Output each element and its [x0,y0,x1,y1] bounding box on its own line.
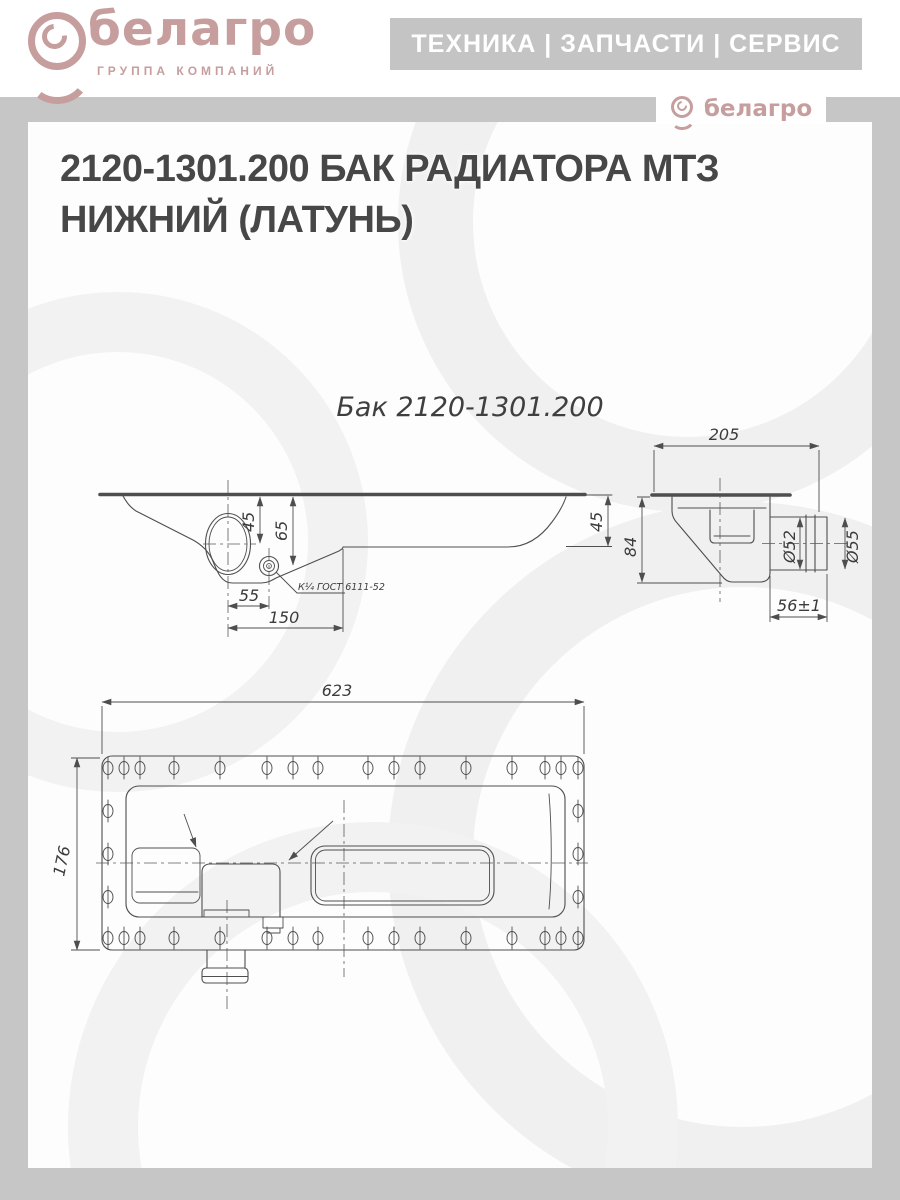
side-outline [123,496,566,583]
dim-623: 623 [322,681,353,700]
side-view-drawing: 45 65 45 55 150 К¼ ГОСТ 6111-52 [100,480,612,638]
belagro-logo: белагро ГРУППА КОМПАНИЙ [26,6,366,96]
thread-note: К¼ ГОСТ 6111-52 [298,582,385,593]
drawing-title: Бак 2120-1301.200 [336,392,603,423]
logo-subtitle: ГРУППА КОМПАНИЙ [97,64,278,78]
plan-outlet-pipe [207,950,245,968]
drain-fitting [263,917,283,933]
leader-line [289,821,333,860]
dim-diameter-55: Ø55 [843,530,862,564]
bolt-holes-top [103,757,583,779]
dim-56: 56±1 [777,596,821,615]
dim-45-right: 45 [587,512,606,532]
plan-view-drawing: 623 176 [49,681,588,1012]
product-title-line1: 2120-1301.200 БАК РАДИАТОРА МТЗ [60,144,850,195]
content-card: 2120-1301.200 БАК РАДИАТОРА МТЗ НИЖНИЙ (… [28,122,872,1168]
dim-176: 176 [49,844,74,878]
outlet-channel-inner [316,850,490,901]
dim-45-left: 45 [239,512,258,532]
end-outline [672,497,770,582]
product-title-line2: НИЖНИЙ (ЛАТУНЬ) [60,195,850,246]
outlet-channel-outer [311,846,494,905]
header-tagline: ТЕХНИКА | ЗАПЧАСТИ | СЕРВИС [390,18,862,70]
dim-65: 65 [272,521,291,541]
plan-body [126,786,565,917]
corner-logo-icon [670,95,698,125]
end-socket [710,510,754,543]
end-view-drawing: 205 Ø52 Ø55 84 56±1 [621,425,862,622]
dim-55: 55 [239,586,259,605]
plan-flange [102,756,584,950]
dim-84: 84 [621,537,640,557]
belagro-logo-icon [26,6,96,98]
product-title: 2120-1301.200 БАК РАДИАТОРА МТЗ НИЖНИЙ (… [60,144,850,246]
dim-205: 205 [709,425,740,444]
logo-wordmark: белагро [88,2,316,57]
dim-150: 150 [269,608,300,627]
corner-logo-text: белагро [704,95,812,124]
dim-diameter-52: Ø52 [780,530,799,564]
corner-logo-tab: белагро [656,95,826,124]
drain-boss [202,864,280,917]
leader-line [184,814,196,847]
technical-drawing: Бак 2120-1301.200 45 65 45 [28,360,872,1040]
bolt-holes-bottom [103,927,583,949]
header: белагро ГРУППА КОМПАНИЙ ТЕХНИКА | ЗАПЧАС… [0,0,900,97]
filler-pocket [132,848,200,903]
